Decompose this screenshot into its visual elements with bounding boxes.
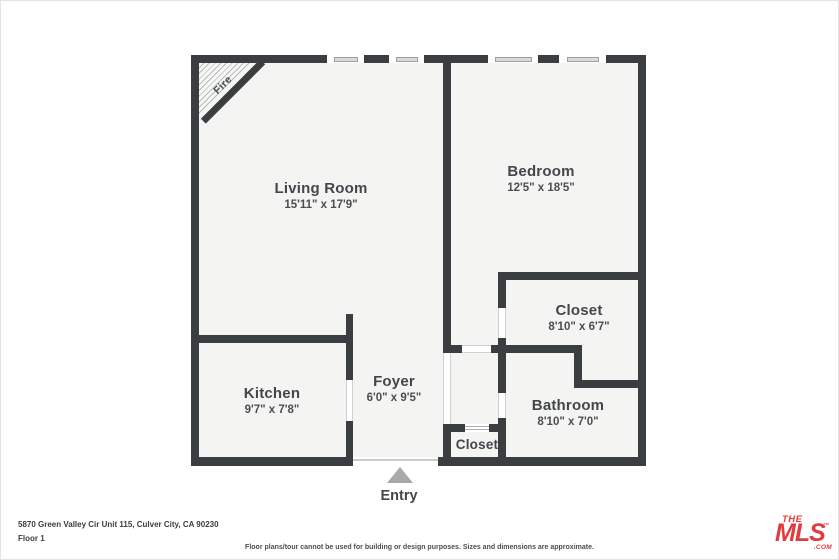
window [327, 55, 364, 63]
window [389, 55, 424, 63]
wall-kitchen-top [191, 335, 353, 343]
room-foyer: Foyer 6'0" x 9'5" [367, 373, 422, 404]
wall-living-bedroom [443, 63, 451, 353]
room-dimensions: 9'7" x 7'8" [244, 404, 300, 416]
room-name: Closet [548, 302, 609, 319]
room-living-room: Living Room 15'11" x 17'9" [274, 180, 367, 211]
window [488, 55, 538, 63]
entry-arrow-icon [387, 467, 413, 483]
room-dimensions: 12'5" x 18'5" [507, 182, 575, 194]
disclaimer-text: Floor plans/tour cannot be used for buil… [1, 544, 838, 551]
wall-bathroom-left-upper [498, 353, 506, 393]
room-dimensions: 15'11" x 17'9" [274, 199, 367, 211]
room-bathroom: Bathroom 8'10" x 7'0" [532, 397, 604, 428]
opening-foyer-hall [443, 353, 451, 424]
floor-number-text: Floor 1 [18, 534, 45, 543]
logo-trademark: ™ [823, 523, 829, 529]
wall-kitchen-foyer-lower [346, 421, 353, 457]
room-bedroom: Bedroom 12'5" x 18'5" [507, 163, 575, 194]
room-dimensions: 6'0" x 9'5" [367, 392, 422, 404]
wall-closet-top [498, 272, 646, 280]
room-bedroom-closet: Closet 8'10" x 6'7" [548, 302, 609, 333]
door-opening-bedroom-closet [498, 308, 506, 338]
wall-kitchen-foyer-upper [346, 314, 353, 380]
room-name: Kitchen [244, 385, 300, 402]
floor-plan-page: Fire Living Room 15'11" x 17'9" Bedroom … [0, 0, 839, 560]
entry-label: Entry [380, 488, 417, 504]
window-glass [567, 57, 599, 62]
address-text: 5870 Green Valley Cir Unit 115, Culver C… [18, 520, 219, 529]
room-name: Bedroom [507, 163, 575, 180]
outer-wall-bottom-left [191, 457, 353, 466]
outer-wall-right [638, 55, 646, 466]
room-kitchen: Kitchen 9'7" x 7'8" [244, 385, 300, 416]
room-name: Closet [456, 437, 498, 452]
window [559, 55, 606, 63]
room-name: Bathroom [532, 397, 604, 414]
floor-plan: Fire Living Room 15'11" x 17'9" Bedroom … [191, 55, 646, 466]
wall-bathroom-top-right [574, 380, 646, 388]
room-name: Living Room [274, 180, 367, 197]
logo-com-text: .COM [814, 544, 832, 551]
outer-wall-left [191, 55, 199, 466]
wall-closet-left-upper [498, 280, 506, 308]
logo-mls-text: MLS [775, 521, 825, 546]
entry-threshold [353, 459, 438, 461]
outer-wall-bottom-right [438, 457, 646, 466]
room-dimensions: 8'10" x 7'0" [532, 416, 604, 428]
window-glass [334, 57, 358, 62]
door-opening-bathroom [498, 393, 506, 418]
sliding-door-entry-closet [465, 424, 489, 432]
room-dimensions: 8'10" x 6'7" [548, 321, 609, 333]
wall-bedroom-bottom-left [443, 345, 462, 353]
window-glass [495, 57, 532, 62]
window-glass [396, 57, 418, 62]
wall-entry-closet-top-left [443, 424, 465, 432]
wall-entry-closet-top-right [489, 424, 506, 432]
room-name: Foyer [367, 373, 422, 390]
the-mls-logo: THE MLS ™ .COM [769, 514, 835, 556]
door-opening-bedroom [462, 345, 491, 353]
fireplace: Fire [199, 63, 253, 117]
room-entry-closet: Closet [456, 437, 498, 452]
door-opening-kitchen [346, 380, 353, 421]
wall-closet-left-lower [498, 338, 506, 353]
